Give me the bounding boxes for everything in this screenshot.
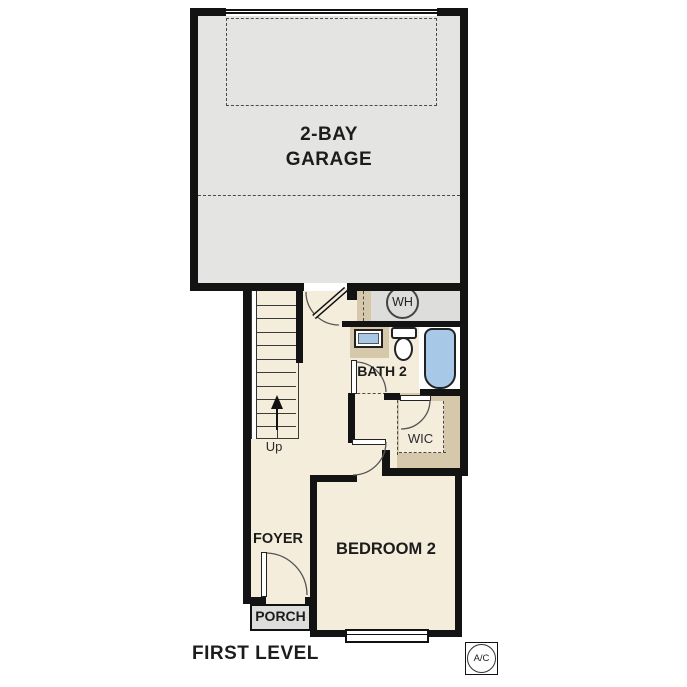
up-arrow-icon <box>271 395 283 409</box>
stair-tread <box>257 372 296 373</box>
wall <box>190 8 226 16</box>
stair-tread <box>257 305 296 306</box>
room-label-wic: WIC <box>397 431 444 446</box>
bedroom-door <box>352 439 386 445</box>
bathtub-icon <box>424 328 456 389</box>
sink-icon <box>354 329 383 348</box>
wall <box>347 291 357 300</box>
wall <box>243 285 251 604</box>
page-title: FIRST LEVEL <box>192 643 392 665</box>
stair-tread <box>257 345 296 346</box>
water-heater-label: WH <box>386 286 419 319</box>
toilet-icon <box>391 327 417 361</box>
bedroom-window <box>345 629 429 643</box>
stair-tread <box>257 386 296 387</box>
wic-shelf-dashed-bottom <box>399 452 446 453</box>
stair-tread <box>257 318 296 319</box>
wall <box>437 8 468 16</box>
garage-label-line2: GARAGE <box>198 147 460 172</box>
garage-label-line1: 2-BAY <box>198 122 460 147</box>
wall <box>382 450 390 470</box>
stair-edge-right <box>298 363 299 439</box>
wall <box>296 285 303 363</box>
wall <box>384 393 400 400</box>
wall <box>190 8 198 291</box>
room-label-bedroom: BEDROOM 2 <box>317 540 455 559</box>
wic-entry-dashed <box>397 395 398 455</box>
stair-tread <box>257 332 296 333</box>
stair-tread <box>257 359 296 360</box>
ac-label: A/C <box>465 642 498 675</box>
front-door <box>261 552 267 597</box>
wall <box>348 393 355 443</box>
wall <box>455 468 462 637</box>
bath-threshold-dashed <box>352 393 386 394</box>
room-label-porch: PORCH <box>250 608 311 624</box>
stairs-up-label: Up <box>253 439 295 454</box>
garage-door <box>226 9 437 14</box>
wall <box>310 475 357 482</box>
wall <box>243 597 266 604</box>
wall <box>342 321 461 327</box>
wall <box>305 597 317 604</box>
wall <box>310 475 317 637</box>
up-arrow-stem <box>276 408 278 430</box>
room-label-foyer: FOYER <box>246 531 310 547</box>
wall <box>460 8 468 472</box>
wic-door <box>400 395 431 401</box>
wall <box>427 630 462 637</box>
room-label-bath: BATH 2 <box>348 363 416 379</box>
wall <box>310 630 347 637</box>
floor-plan: 2-BAY GARAGE WH BATH 2 WIC Up FOYER BEDR… <box>0 0 687 687</box>
garage-mid-dashed-line <box>198 195 460 196</box>
garage-bay-dashed-outline <box>226 18 437 106</box>
room-label-garage: 2-BAY GARAGE <box>198 122 460 172</box>
chase-dashed-line <box>363 291 364 321</box>
chase-strip <box>357 291 371 321</box>
stair-railing <box>251 291 257 439</box>
